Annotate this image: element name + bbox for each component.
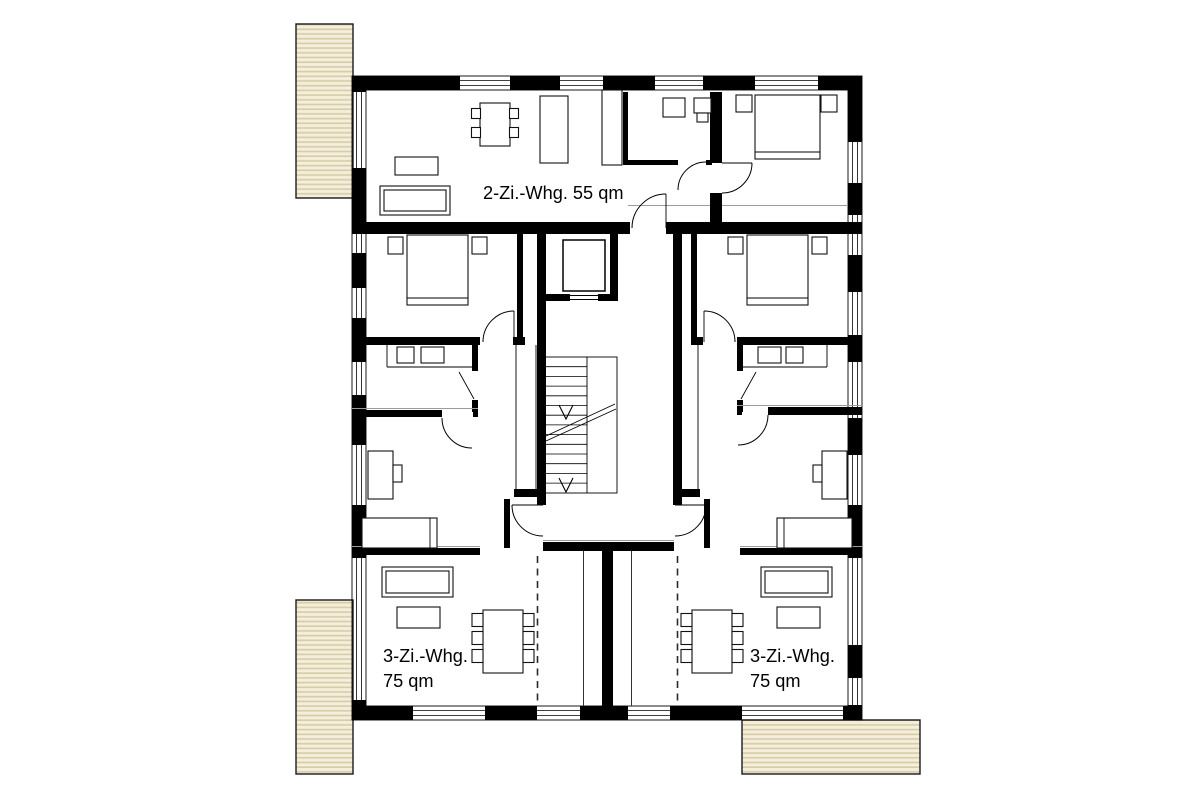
apartment-label-bottom-left-line2: 75 qm	[383, 671, 434, 691]
furniture-bathrooms	[387, 345, 827, 367]
single-bed	[777, 518, 852, 548]
balcony-bottom-left	[296, 600, 353, 774]
coffee-table	[777, 607, 820, 628]
washbasin	[397, 347, 414, 363]
stair-arrow	[559, 478, 573, 492]
sideboard	[395, 157, 438, 175]
balcony-top-left	[296, 24, 353, 198]
apartment-label-bottom-right-line1: 3-Zi.-Whg.	[750, 646, 835, 666]
toilet	[694, 98, 711, 113]
floorplan-drawing: 2-Zi.-Whg. 55 qm 3-Zi.-Whg. 75 qm 3-Zi.-…	[0, 0, 1200, 800]
desk-chair	[813, 465, 822, 482]
coffee-table	[397, 607, 440, 628]
apartment-label-bottom-right-line2: 75 qm	[750, 671, 801, 691]
nightstand	[388, 237, 403, 254]
wardrobe	[602, 90, 622, 165]
elevator-car	[563, 240, 605, 291]
single-bed	[362, 518, 437, 548]
washbasin	[758, 347, 781, 363]
dining-table	[483, 610, 523, 673]
stair-arrow	[559, 405, 573, 419]
nightstand	[472, 237, 487, 254]
washbasin	[421, 347, 444, 363]
nightstand	[812, 237, 827, 254]
stair-cut-line	[546, 404, 615, 436]
desk-chair	[393, 465, 402, 482]
dining-table	[480, 103, 510, 146]
nightstand	[821, 95, 837, 112]
double-bed	[407, 235, 468, 305]
furniture-office-rooms	[362, 451, 852, 548]
dining-table	[692, 610, 732, 673]
apartment-label-top: 2-Zi.-Whg. 55 qm	[483, 183, 623, 203]
staircase	[545, 357, 617, 493]
balcony-bottom-right	[742, 720, 920, 774]
double-bed	[755, 95, 820, 159]
double-bed	[747, 235, 808, 305]
nightstand	[728, 237, 743, 254]
elevator	[546, 234, 618, 301]
washbasin	[786, 347, 803, 363]
wardrobe	[540, 96, 568, 163]
desk	[368, 451, 393, 499]
desk	[822, 451, 847, 499]
floorplan-page: 2-Zi.-Whg. 55 qm 3-Zi.-Whg. 75 qm 3-Zi.-…	[0, 0, 1200, 800]
apartment-label-bottom-left-line1: 3-Zi.-Whg.	[383, 646, 468, 666]
nightstand	[736, 95, 752, 112]
washbasin	[663, 98, 685, 117]
